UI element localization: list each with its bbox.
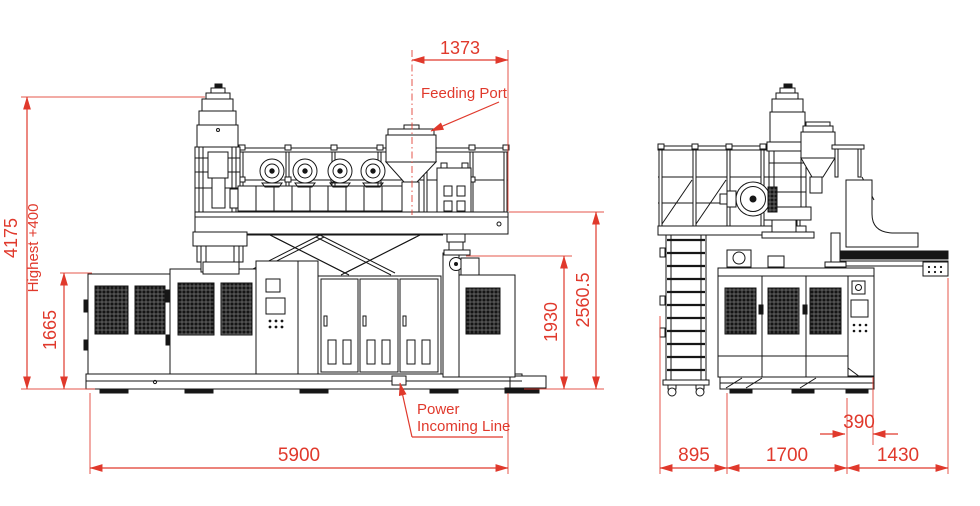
clamp-arm (832, 145, 918, 247)
dim-text-4175: 4175 (1, 218, 21, 258)
cabinet-left (84, 274, 170, 374)
electrical-box (437, 163, 471, 212)
door-section (318, 276, 441, 374)
front-view (84, 84, 546, 393)
side-view (658, 84, 948, 396)
extension-lines (21, 50, 948, 474)
engineering-drawing: 1373 Feeding Port 4175 Highest +400 1665… (0, 0, 980, 506)
platform-deck (195, 212, 508, 234)
side-control-panel (848, 276, 874, 377)
cooling-fans (260, 159, 385, 187)
dim-text-2560: 2560.5 (573, 272, 593, 327)
highest-note-label: Highest +400 (25, 204, 42, 293)
dim-text-1373: 1373 (440, 38, 480, 58)
feeding-port-leader (431, 102, 499, 131)
side-base (720, 377, 874, 393)
dim-text-1430: 1430 (877, 445, 919, 466)
extruder-barrel (230, 186, 405, 211)
die-head-tower (193, 84, 247, 274)
power-label-line1: Power (417, 401, 460, 418)
dim-text-390: 390 (843, 412, 875, 433)
feeding-port-label: Feeding Port (421, 85, 508, 102)
drawing-canvas: 1373 Feeding Port 4175 Highest +400 1665… (0, 0, 980, 506)
dim-text-895: 895 (678, 445, 710, 466)
dim-text-1700: 1700 (766, 445, 808, 466)
cabinet-right (459, 258, 515, 377)
ladder (660, 230, 709, 396)
control-station (256, 261, 318, 374)
dim-text-5900: 5900 (278, 445, 320, 466)
dim-text-1665: 1665 (40, 310, 60, 350)
dim-text-1930: 1930 (541, 302, 561, 342)
cabinet-mid (166, 269, 256, 374)
power-label-line2: Incoming Line (417, 418, 510, 435)
dimension-layer: 1373 Feeding Port 4175 Highest +400 1665… (1, 38, 948, 474)
